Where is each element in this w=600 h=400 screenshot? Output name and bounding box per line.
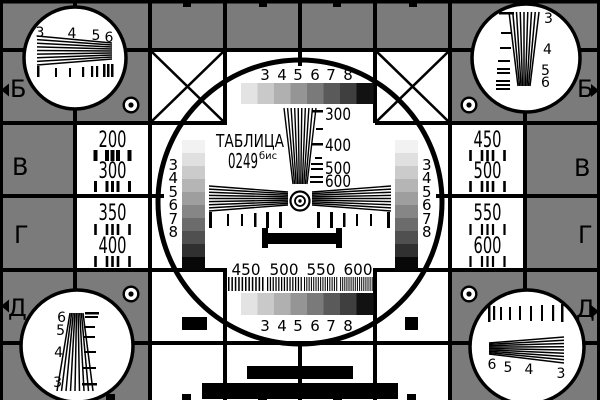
burst-label: 600 [344,260,373,279]
frequency-gratings-mark [357,277,358,291]
corner-ticks-top-left-mark [103,64,106,77]
staircase-right-mark [395,140,418,154]
black-bar-body [267,233,337,244]
staircase-right-mark [395,153,418,167]
staircase-right-labels: 3 4 5 6 7 8 [422,156,432,241]
bullseye-marker-dot [128,102,133,107]
freq-cell-value: 300 [99,159,127,184]
center-wedge-scale-dashes-mark [311,163,323,165]
center-tick-row-mark [356,214,358,226]
grayscale-bar-top-mark [241,83,258,104]
edge-digit-stubs-mark [106,394,115,400]
frequency-gratings-mark [301,277,302,291]
grayscale-bar-bottom-mark [307,293,324,315]
corner-dashes-top-right-mark [496,84,510,86]
edge-digit-stubs-mark [333,3,341,7]
center-wedge-labels: 300 400 500 600 [325,105,351,192]
corner-label: 4 [54,345,63,361]
gray-label: 8 [343,317,353,335]
frequency-cell-ticks-mark [486,224,488,235]
frequency-gratings-mark [298,277,299,291]
staircase-left-mark [182,166,205,180]
frequency-gratings-mark [355,277,356,291]
frequency-gratings-mark [295,277,296,291]
bullseye-center-dot [298,199,301,202]
corner-ticks-bottom-right-mark [561,304,564,322]
frequency-gratings-mark [289,277,290,291]
frequency-gratings-mark [231,277,233,291]
center-tick-row-mark [387,212,390,228]
frequency-gratings-mark [259,277,261,291]
center-vertical-wedge-line [301,108,302,184]
frequency-cell-ticks-mark [111,224,114,235]
grid-lines-mark [0,194,164,198]
frequency-cell-ticks-mark [492,181,495,192]
corner-dashes-top-right-mark [497,68,510,70]
frequency-gratings-mark [369,277,370,291]
edge-digit-stubs-mark [183,3,191,7]
gray-label: 7 [326,66,336,84]
frequency-gratings-mark [344,277,345,291]
center-wedge-scale-dashes-mark [311,168,323,170]
frequency-cell-ticks-mark [469,224,471,235]
bullseye-marker-dot [466,102,471,107]
frequency-gratings-mark [245,277,247,291]
corner-ticks-top-left-mark [82,67,84,77]
grid-lines-mark [148,0,152,400]
corner-ticks-bottom-right-mark [500,307,502,320]
corner-dashes-bottom-left-mark [84,351,96,353]
frequency-cell-ticks-mark [486,181,489,192]
edge-digit-stubs-mark [182,394,191,400]
frequency-cell-ticks-mark [94,224,97,235]
bullseye-marker-dot [128,291,133,296]
frequency-gratings-mark [329,277,330,291]
staircase-right-mark [395,205,418,219]
frequency-cell-ticks-mark [106,224,109,235]
edge-digit-stubs-mark [258,394,267,400]
corner-ticks-top-left-mark [107,64,110,77]
frequency-gratings-mark [311,277,312,291]
grid-lines-mark [223,0,227,123]
center-wedge-scale-dashes-mark [312,143,323,146]
frequency-gratings-mark [334,277,335,291]
grid-lines-mark [223,268,227,400]
row-letter-left: Д [8,294,27,322]
grayscale-bar-top-mark [357,83,374,104]
corner-ticks-top-left-mark [69,68,71,77]
black-bar-right-cap [336,228,342,248]
grid-lines-mark [375,121,600,125]
frequency-gratings-mark [367,277,368,291]
corner-ticks-top-left-mark [96,66,98,77]
corner-label: 3 [557,366,566,382]
gray-label: 5 [293,317,303,335]
row-letter-right: Б [577,75,593,103]
frequency-cell-ticks-mark [503,256,505,267]
staircase-right-mark [395,166,418,180]
center-tick-row-mark [241,214,243,226]
frequency-cell-ticks-mark [117,224,120,235]
frequency-gratings-mark [322,277,323,291]
corner-label: 5 [56,323,65,339]
frequency-gratings-mark [320,277,321,291]
center-wedge-scale-dashes-mark [312,110,323,113]
corner-label: 6 [105,30,114,46]
frequency-cell-ticks-mark [111,181,114,192]
freq-cell-value: 500 [474,159,502,184]
grayscale-bar-bottom [241,293,374,315]
center-tick-row-mark [254,213,257,227]
frequency-cell-ticks-mark [94,256,97,267]
frequency-cell-ticks-mark [128,181,131,192]
black-mark-left [182,317,207,330]
edge-digit-stubs-mark [333,394,342,400]
frequency-cell-ticks-mark [469,181,472,192]
frequency-gratings-mark [340,277,341,291]
corner-ticks-top-left-mark [91,66,93,77]
frequency-cell-ticks-mark [481,256,483,267]
grid-lines-mark [0,0,600,4]
frequency-gratings-mark [361,277,362,291]
edge-digit-stubs-mark [259,3,267,7]
center-tick-row-mark [370,214,372,226]
frequency-gratings-mark [262,277,264,291]
frequency-gratings-mark [313,277,314,291]
row-letter-right: Г [578,221,593,249]
staircase-left-mark [182,140,205,154]
frequency-gratings-mark [365,277,366,291]
stair-label: 8 [422,223,432,241]
frequency-cell-ticks-mark [117,256,120,267]
burst-label: 500 [270,260,299,279]
corner-label: 6 [488,357,497,373]
frequency-gratings-mark [235,277,237,291]
corner-label: 3 [544,11,553,27]
frequency-cell-ticks-mark [503,181,506,192]
staircase-left-mark [182,153,205,167]
frequency-cell-ticks-mark [128,256,131,267]
frequency-cell-ticks-mark [492,150,495,161]
frequency-gratings-mark [363,277,364,291]
center-tick-row-mark [266,212,269,228]
stair-label: 8 [168,223,178,241]
black-mark-right [405,317,418,330]
grayscale-bar-top-mark [324,83,341,104]
frequency-gratings-mark [342,277,343,291]
staircase-right-mark [395,218,418,232]
test-card: 3 4 5 6 7 8 300 400 500 600 ТАБЛИЦА 0249… [0,0,600,400]
frequency-gratings-mark [332,277,333,291]
row-letter-left: Б [10,75,26,103]
pulse-bar-narrow [247,366,353,379]
frequency-gratings-mark [287,277,288,291]
frequency-gratings-mark [372,277,373,291]
staircase-left-mark [182,179,205,193]
staircase-right-mark [395,257,418,271]
frequency-gratings-mark [273,277,274,291]
grid-lines-mark [436,194,600,198]
center-tick-row-mark [279,212,282,228]
corner-ticks-top-left-mark [37,66,40,77]
grid-lines-mark [373,0,377,123]
center-wedge-scale-dashes-mark [310,176,323,178]
corner-dashes-bottom-left-mark [85,312,99,315]
frequency-gratings-mark [228,277,230,291]
gray-label: 3 [260,317,270,335]
center-wedge-scale-dashes-mark [315,157,322,159]
black-bar-left-cap [262,228,268,248]
grayscale-bar-bottom-mark [324,293,341,315]
center-tick-row-mark [209,212,212,228]
frequency-cell-ticks-mark [94,150,98,161]
corner-wedge-top-left-line [37,51,112,52]
gray-label: 7 [326,317,336,335]
staircase-left-mark [182,218,205,232]
frequency-gratings-mark [270,277,271,291]
frequency-gratings-mark [336,277,337,291]
frequency-gratings-mark [255,277,257,291]
card-number-text: 0249 [228,149,258,173]
frequency-gratings-mark [309,277,310,291]
frequency-gratings-mark [370,277,371,291]
staircase-right-mark [395,192,418,206]
frequency-cell-ticks-mark [481,150,484,161]
test-card-canvas: 3 4 5 6 7 8 300 400 500 600 ТАБЛИЦА 0249… [0,0,600,400]
frequency-cell-ticks-mark [492,224,494,235]
corner-ticks-top-left-mark [55,68,57,77]
grid-lines-mark [0,0,3,400]
row-letter-left: Г [14,221,29,249]
corner-dashes-bottom-left-mark [83,367,96,369]
corner-dashes-top-right-mark [500,47,511,49]
center-tick-row-mark [317,212,320,228]
corner-ticks-bottom-right-mark [552,305,554,321]
frequency-gratings-mark [275,277,276,291]
corner-dashes-bottom-left-mark [84,336,95,338]
frequency-gratings-mark [316,277,317,291]
frequency-gratings-mark [284,277,285,291]
grid-lines-mark [373,268,377,400]
freq-cell-value: 600 [474,234,502,259]
frequency-gratings-mark [252,277,254,291]
corner-ticks-top-left-mark [111,64,114,77]
frequency-gratings-mark [278,277,279,291]
center-vertical-wedge-line [298,108,299,184]
frequency-cell-ticks-mark [111,150,115,161]
corner-label: 4 [68,26,77,42]
corner-dashes-top-right-mark [496,88,510,90]
center-tick-row-mark [343,213,346,227]
frequency-gratings-mark [306,277,307,291]
corner-label: 3 [36,25,45,41]
grayscale-bar-bottom-mark [241,293,258,315]
corner-dashes-top-right-mark [497,72,510,74]
staircase-right-mark [395,244,418,258]
frequency-cell-ticks-mark [469,150,472,161]
frequency-cell-ticks-mark [128,224,131,235]
frequency-cell-ticks-mark [492,256,494,267]
frequency-gratings-mark [325,277,326,291]
frequency-cell-ticks-mark [106,256,109,267]
frequency-gratings-mark [281,277,282,291]
corner-label: 6 [541,75,550,91]
frequency-gratings-mark [327,277,328,291]
freq-cell-value: 350 [99,201,127,226]
grayscale-bar-bottom-mark [340,293,357,315]
frequency-gratings-mark [353,277,354,291]
staircase-left-mark [182,205,205,219]
frequency-gratings-mark [238,277,240,291]
grayscale-bar-top-mark [274,83,291,104]
grayscale-bar-top-mark [258,83,275,104]
frequency-gratings-mark [359,277,360,291]
frequency-cell-ticks-mark [94,181,97,192]
freq-cell-value: 200 [99,128,127,153]
frequency-gratings-mark [350,277,351,291]
frequency-cell-ticks-mark [105,150,109,161]
grayscale-bar-bottom-mark [274,293,291,315]
corner-ticks-bottom-right-mark [509,307,511,320]
freq-cell-value: 400 [99,234,127,259]
frequency-gratings-mark [248,277,250,291]
frequency-gratings-mark [304,277,305,291]
grayscale-bar-bottom-mark [258,293,275,315]
gray-label: 5 [293,66,303,84]
frequency-cell-ticks-mark [481,224,483,235]
center-tick-row-mark [330,212,333,228]
frequency-gratings-mark [242,277,244,291]
row-letter-right: В [574,154,590,182]
frequency-cell-ticks-mark [116,150,120,161]
gray-label: 4 [277,317,287,335]
corner-ticks-bottom-right-mark [519,306,521,320]
pulse-bar-wide [202,383,398,399]
grid-lines-mark [298,0,302,66]
wedge-label: 300 [325,105,351,125]
row-letter-left: В [12,153,28,181]
burst-label: 550 [307,260,336,279]
frequency-gratings-mark [318,277,319,291]
burst-label: 450 [232,260,261,279]
frequency-gratings-mark [292,277,293,291]
center-tick-row-mark [227,214,229,226]
frequency-cell-ticks-mark [469,256,471,267]
corner-ticks-bottom-right-mark [493,306,495,320]
staircase-left-mark [182,231,205,245]
freq-cell-value: 450 [474,128,502,153]
grayscale-bar-top [241,83,374,104]
center-wedge-scale-dashes-mark [310,181,323,183]
corner-label: 4 [543,42,552,58]
grayscale-bar-top-mark [307,83,324,104]
corner-circle-bottom-left [21,290,133,400]
frequency-cell-ticks-mark [503,224,505,235]
frequency-gratings-mark [348,277,349,291]
grid-lines-mark [0,121,227,125]
staircase-left-mark [182,257,205,271]
corner-label: 3 [53,375,62,391]
corner-dashes-top-right-mark [496,80,510,82]
frequency-cell-ticks-mark [486,256,488,267]
staircase-left-mark [182,244,205,258]
edge-digit-stubs-mark [409,3,417,7]
corner-dashes-bottom-left-mark [82,383,97,386]
grayscale-bar-bottom-mark [291,293,308,315]
frequency-gratings-mark [351,277,352,291]
gray-label: 6 [310,66,320,84]
corner-dashes-bottom-left-mark [84,326,95,328]
freq-cell-value: 550 [474,201,502,226]
staircase-right [395,140,418,271]
corner-label: 4 [525,362,534,378]
bullseye-marker-dot [466,291,471,296]
frequency-cell-ticks-mark [106,181,109,192]
staircase-right-mark [395,231,418,245]
frequency-cell-ticks-mark [128,150,132,161]
corner-label: 5 [92,28,101,44]
frequency-cell-ticks-mark [486,150,489,161]
frequency-gratings-mark [267,277,268,291]
corner-dashes-top-right-mark [498,60,510,62]
grayscale-bar-top-mark [291,83,308,104]
staircase-left-mark [182,192,205,206]
staircase-left [182,140,205,271]
corner-dashes-top-right-mark [499,12,514,15]
grayscale-bar-top-mark [340,83,357,104]
edge-digit-stubs-mark [407,394,416,400]
center-wedge-scale-dashes-mark [316,128,323,130]
corner-dashes-top-right-mark [501,32,512,34]
frequency-cell-ticks-mark [111,256,114,267]
grid-lines-mark [448,0,452,400]
staircase-right-mark [395,179,418,193]
frequency-cell-ticks-mark [481,181,484,192]
corner-ticks-bottom-right-mark [541,305,543,321]
corner-ticks-bottom-right-mark [488,306,491,322]
corner-label: 5 [504,360,513,376]
frequency-cell-ticks-mark [503,150,506,161]
grayscale-bar-bottom-mark [357,293,374,315]
corner-dashes-bottom-left-mark [85,316,98,318]
gray-label: 4 [277,66,287,84]
gray-label: 8 [343,66,353,84]
gray-label: 6 [310,317,320,335]
wedge-label: 400 [325,136,351,156]
staircase-left-labels: 3 4 5 6 7 8 [168,156,178,241]
frequency-gratings-mark [346,277,347,291]
card-suffix-text: бис [259,151,277,162]
frequency-cell-ticks-mark [117,181,120,192]
corner-ticks-bottom-right-mark [530,306,532,321]
gray-label: 3 [260,66,270,84]
